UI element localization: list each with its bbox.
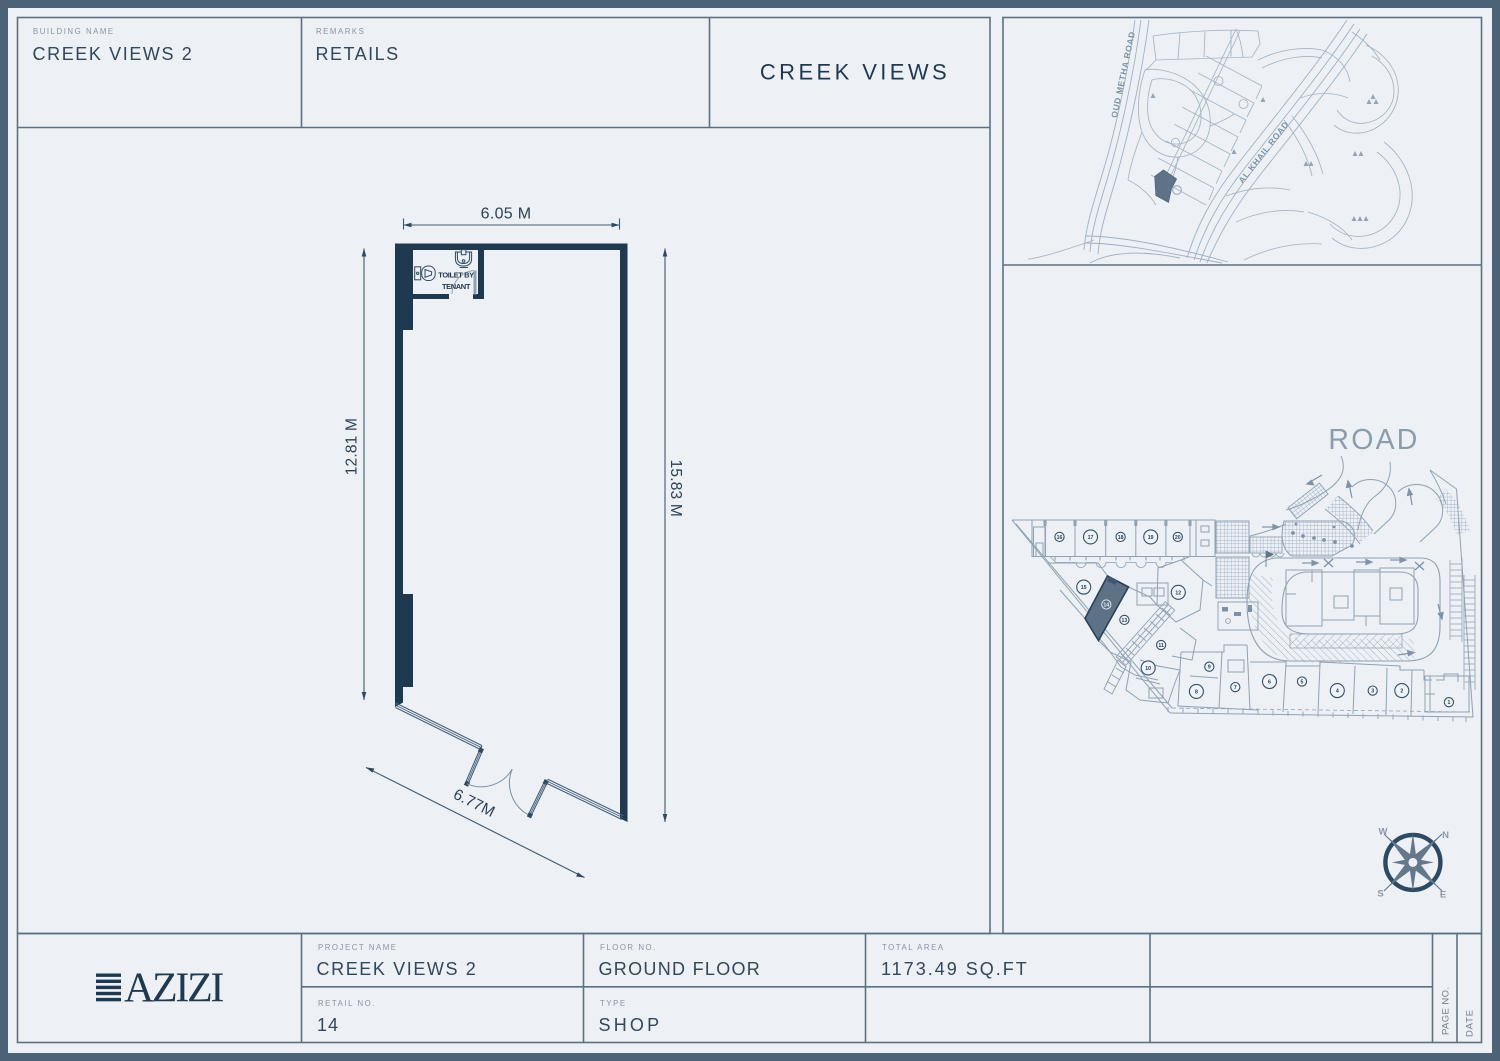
svg-text:20: 20 [1175,535,1181,541]
svg-text:6: 6 [1268,680,1271,686]
svg-text:12: 12 [1175,590,1181,596]
svg-text:1: 1 [1447,700,1450,706]
svg-text:15.83 M: 15.83 M [667,460,684,517]
svg-text:N: N [1442,830,1449,841]
svg-text:CREEK VIEWS 2: CREEK VIEWS 2 [317,959,478,979]
svg-text:6.77M: 6.77M [451,786,498,821]
svg-text:7: 7 [1234,685,1237,691]
svg-text:8: 8 [1195,689,1198,695]
svg-text:14: 14 [317,1015,339,1035]
svg-text:RETAILS: RETAILS [316,44,400,64]
svg-text:11: 11 [1158,643,1164,649]
svg-text:REMARKS: REMARKS [316,27,365,36]
svg-text:ROAD: ROAD [1328,424,1419,456]
svg-text:10: 10 [1145,666,1151,672]
svg-text:FLOOR NO.: FLOOR NO. [600,943,657,952]
svg-text:2: 2 [1400,689,1403,695]
svg-text:AZIZI: AZIZI [124,966,223,1012]
svg-text:PROJECT NAME: PROJECT NAME [318,943,398,952]
svg-text:14: 14 [1103,602,1109,608]
svg-text:9: 9 [1208,665,1211,671]
svg-text:TYPE: TYPE [600,999,627,1008]
svg-text:RETAIL NO.: RETAIL NO. [318,999,376,1008]
svg-text:CREEK VIEWS: CREEK VIEWS [760,60,950,85]
svg-text:W: W [1379,827,1388,838]
svg-text:15: 15 [1081,585,1087,591]
svg-text:TENANT: TENANT [442,282,471,291]
svg-text:17: 17 [1088,535,1094,541]
svg-text:12.81 M: 12.81 M [344,418,361,475]
svg-text:OUD METHA ROAD: OUD METHA ROAD [1109,30,1137,118]
svg-text:18: 18 [1118,535,1124,541]
svg-text:AL KHAIL ROAD: AL KHAIL ROAD [1236,119,1291,185]
svg-text:6.05 M: 6.05 M [481,206,532,223]
svg-text:19: 19 [1148,535,1154,541]
svg-text:TOTAL AREA: TOTAL AREA [882,943,945,952]
svg-text:4: 4 [1336,689,1339,695]
svg-text:1173.49 SQ.FT: 1173.49 SQ.FT [881,959,1029,979]
svg-text:16: 16 [1057,535,1063,541]
svg-text:S: S [1377,889,1383,900]
svg-text:DATE: DATE [1465,1009,1476,1037]
svg-text:E: E [1440,890,1446,901]
svg-text:GROUND FLOOR: GROUND FLOOR [599,959,762,979]
svg-text:13: 13 [1122,618,1128,624]
svg-text:BUILDING NAME: BUILDING NAME [33,27,115,36]
svg-text:3: 3 [1371,689,1374,695]
svg-text:CREEK VIEWS 2: CREEK VIEWS 2 [33,44,194,64]
svg-text:5: 5 [1301,680,1304,686]
svg-text:SHOP: SHOP [599,1015,663,1035]
svg-text:PAGE NO.: PAGE NO. [1441,987,1452,1035]
svg-text:TOILET BY: TOILET BY [438,271,474,280]
